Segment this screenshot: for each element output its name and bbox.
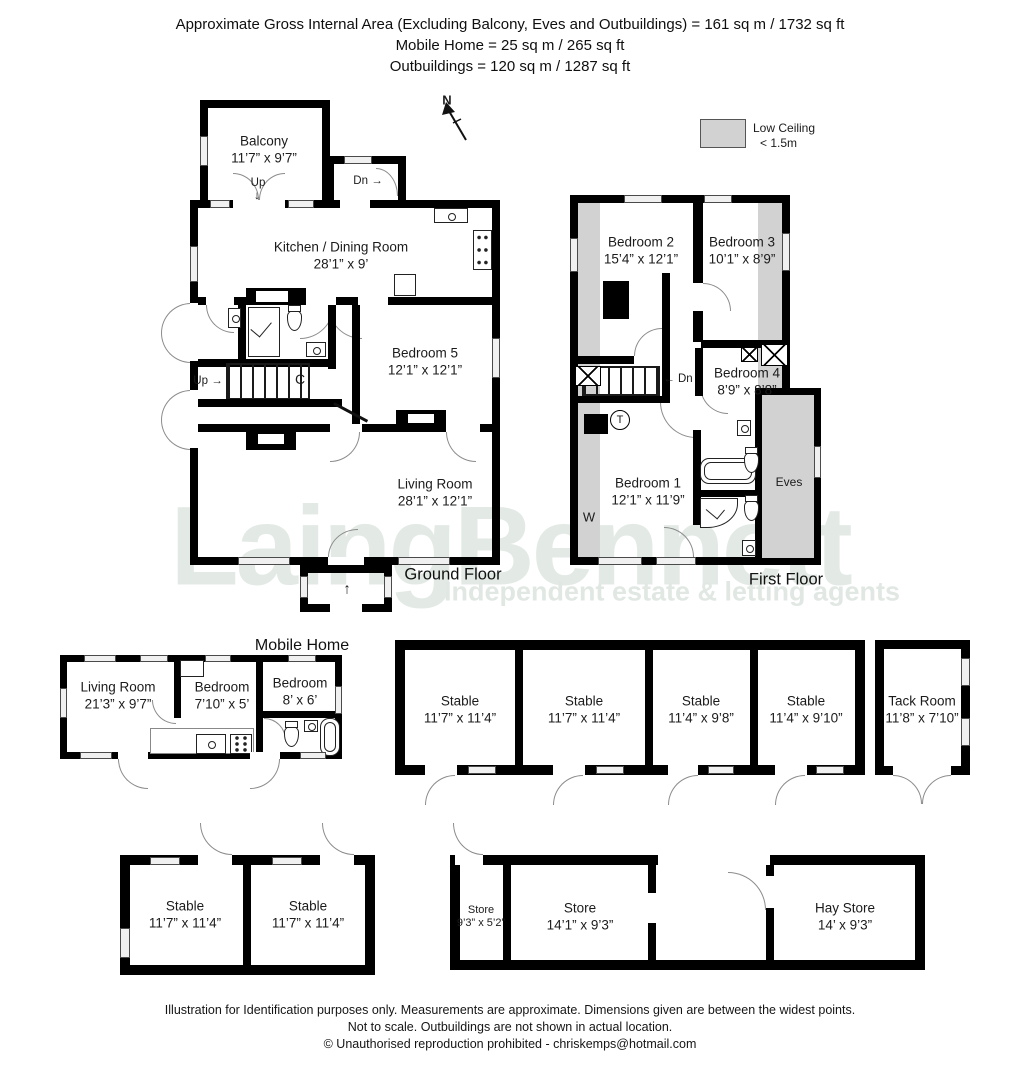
entrance-arrow: ↑ (343, 581, 351, 598)
room-name: Stable (548, 694, 620, 711)
window (272, 857, 302, 865)
room-name: Living Room (80, 680, 155, 697)
kitchen-sink-icon (196, 734, 226, 754)
vanity-sink-icon (256, 291, 288, 302)
room-label-store-small: Store 9’3” x 5’2” (457, 904, 505, 930)
fireplace-icon (258, 434, 284, 444)
room-dims: 28’1” x 9’ (274, 256, 408, 273)
window (205, 655, 231, 662)
basin-icon (737, 420, 751, 436)
room-name: Stable (272, 899, 344, 916)
ground-floor-label: Ground Floor (404, 566, 501, 585)
eves-label: Eves (776, 475, 803, 489)
door-arc (668, 775, 698, 805)
door-opening (320, 855, 354, 865)
first-floor-label: First Floor (749, 571, 823, 590)
floorplan-canvas: LaingBennett Independent estate & lettin… (0, 0, 1020, 1067)
room-name: Stable (769, 694, 842, 711)
header-mobile-home-line: Mobile Home = 25 sq m / 265 sq ft (0, 37, 1020, 54)
window (961, 718, 970, 746)
window (238, 557, 290, 565)
room-label-bedroom2: Bedroom 2 15’4” x 12’1” (604, 235, 678, 268)
room-dims: 11’7” x 11’4” (548, 710, 620, 727)
sink-icon (228, 308, 241, 328)
wall (693, 311, 703, 342)
cupboard-block (584, 414, 608, 434)
stairs-down-label: Dn → (353, 175, 382, 187)
basin-icon (306, 342, 326, 357)
window (961, 658, 970, 686)
wall (578, 396, 668, 403)
wall (243, 865, 251, 965)
window (344, 156, 372, 164)
room-dims: 11’7” x 11’4” (272, 915, 344, 932)
door-opening (775, 765, 807, 775)
room-dims: 11’7” x 9’7” (231, 150, 297, 167)
roof-window-icon (761, 344, 788, 366)
door-arc (161, 420, 191, 450)
window (150, 857, 180, 865)
door-opening (330, 424, 362, 432)
room-name: Bedroom (195, 680, 250, 697)
door-arc (161, 390, 191, 420)
wall (256, 660, 263, 754)
room-dims: 11’4” x 9’8” (668, 710, 734, 727)
legend-subtitle: < 1.5m (760, 136, 797, 150)
window (300, 752, 326, 759)
fireplace-icon (408, 414, 434, 423)
room-dims: 21’3” x 9’7” (80, 696, 155, 713)
roof-window-icon (575, 366, 601, 386)
room-label-mh-bedroom-b: Bedroom 8’ x 6’ (273, 676, 328, 709)
wall (263, 711, 342, 718)
door-opening (446, 424, 480, 432)
window (708, 766, 734, 774)
window (598, 557, 642, 565)
header-area-line: Approximate Gross Internal Area (Excludi… (0, 16, 1020, 33)
window (596, 766, 624, 774)
door-arc (200, 823, 232, 855)
room-label-store: Store 14’1” x 9’3” (547, 901, 614, 934)
door-opening (340, 200, 370, 208)
room-name: Balcony (231, 134, 297, 151)
room-label-stable-4: Stable 11’4” x 9’10” (769, 694, 842, 727)
room-name: Bedroom 1 (611, 476, 684, 493)
room-label-mh-living: Living Room 21’3” x 9’7” (80, 680, 155, 713)
window (468, 766, 496, 774)
window (624, 195, 662, 203)
door-arc (453, 823, 483, 855)
door-opening (206, 297, 234, 305)
wardrobe-label: W (583, 510, 595, 525)
room-label-tack-room: Tack Room 11’8” x 7’10” (885, 694, 958, 727)
room-name: Bedroom 4 (714, 366, 780, 383)
room-label-balcony: Balcony 11’7” x 9’7” (231, 134, 297, 167)
north-arrow-icon (432, 96, 476, 146)
room-name: Store (547, 901, 614, 918)
room-label-living-room: Living Room 28’1” x 12’1” (397, 477, 472, 510)
roof-window-icon (741, 347, 758, 362)
room-dims: 9’3” x 5’2” (457, 917, 505, 930)
room-label-mh-bedroom-a: Bedroom 7’10” x 5’ (195, 680, 250, 713)
room-dims: 7’10” x 5’ (195, 696, 250, 713)
window (60, 688, 67, 718)
down-arrow-glyph: ↓ (254, 190, 260, 202)
open-bay (658, 855, 770, 865)
basin-icon (304, 720, 318, 732)
room-dims: 14’1” x 9’3” (547, 917, 614, 934)
basin-icon (742, 540, 756, 556)
door-arc (161, 303, 191, 333)
window (80, 752, 112, 759)
stairs-down-label: ← Dn (663, 373, 692, 385)
window (140, 655, 168, 662)
low-ceiling-swatch (700, 119, 746, 148)
door-opening (250, 752, 280, 759)
room-label-stable-6: Stable 11’7” x 11’4” (272, 899, 344, 932)
window (210, 200, 230, 208)
window (816, 766, 844, 774)
copyright-line: © Unauthorised reproduction prohibited -… (0, 1037, 1020, 1051)
door-opening (553, 765, 585, 775)
door-arc (250, 759, 280, 789)
door-opening (648, 893, 656, 923)
room-label-hay-store: Hay Store 14’ x 9’3” (815, 901, 875, 934)
window (288, 200, 314, 208)
door-arc (322, 823, 354, 855)
kitchen-sink-icon (434, 208, 468, 223)
room-dims: 11’7” x 11’4” (424, 710, 496, 727)
mobile-home-label: Mobile Home (255, 637, 349, 655)
room-name: Store (457, 904, 505, 917)
room-dims: 12’1” x 11’9” (611, 492, 684, 509)
window (300, 576, 308, 598)
window (782, 233, 790, 271)
room-name: Stable (424, 694, 496, 711)
room-name: Stable (668, 694, 734, 711)
room-dims: 8’ x 6’ (273, 692, 328, 709)
wall (645, 650, 653, 765)
room-name: Hay Store (815, 901, 875, 918)
chimney-breast (603, 281, 629, 319)
header-outbuildings-line: Outbuildings = 120 sq m / 1287 sq ft (0, 58, 1020, 75)
room-dims: 8’9” x 8’8” (714, 382, 780, 399)
room-label-stable-5: Stable 11’7” x 11’4” (149, 899, 221, 932)
wall (750, 650, 758, 765)
room-name: Bedroom 3 (709, 235, 776, 252)
door-opening (425, 765, 457, 775)
room-label-stable-2: Stable 11’7” x 11’4” (548, 694, 620, 727)
window (84, 655, 116, 662)
door-opening (358, 297, 388, 305)
wall (515, 650, 523, 765)
door-opening (455, 855, 483, 865)
legend-title: Low Ceiling (753, 121, 815, 135)
room-name: Living Room (397, 477, 472, 494)
room-name: Tack Room (885, 694, 958, 711)
door-arc (922, 775, 951, 804)
window (384, 576, 392, 598)
room-dims: 11’8” x 7’10” (885, 710, 958, 727)
wall (693, 430, 701, 492)
window (814, 446, 821, 478)
room-name: Bedroom (273, 676, 328, 693)
room-label-kitchen-dining: Kitchen / Dining Room 28’1” x 9’ (274, 240, 408, 273)
room-name: Bedroom 2 (604, 235, 678, 252)
cooker-hob-icon (230, 734, 252, 754)
room-dims: 11’7” x 11’4” (149, 915, 221, 932)
room-name: Bedroom 5 (388, 346, 462, 363)
door-opening (190, 390, 198, 448)
wall (693, 203, 703, 283)
door-opening (198, 855, 232, 865)
room-dims: 10’1” x 8’9” (709, 251, 776, 268)
window (704, 195, 732, 203)
door-arc (161, 333, 191, 363)
tank-icon: T (610, 410, 630, 430)
cooker-hob-icon (473, 230, 492, 270)
room-dims: 11’4” x 9’10” (769, 710, 842, 727)
bath-icon (320, 718, 340, 756)
door-opening (766, 876, 774, 908)
stairs-up-label: Up (251, 177, 266, 189)
wall (695, 348, 703, 396)
room-name: Stable (149, 899, 221, 916)
window (398, 557, 450, 565)
door-opening (190, 303, 198, 361)
room-label-stable-1: Stable 11’7” x 11’4” (424, 694, 496, 727)
door-opening (330, 604, 362, 612)
room-label-bedroom5: Bedroom 5 12’1” x 12’1” (388, 346, 462, 379)
room-label-bedroom1: Bedroom 1 12’1” x 11’9” (611, 476, 684, 509)
window (288, 655, 316, 662)
room-dims: 28’1” x 12’1” (397, 493, 472, 510)
room-name: Kitchen / Dining Room (274, 240, 408, 257)
door-arc (893, 775, 922, 804)
disclaimer-line-2: Not to scale. Outbuildings are not shown… (0, 1020, 1020, 1034)
watermark-tagline: Independent estate & letting agents (444, 577, 900, 608)
window (570, 238, 578, 272)
wardrobe-box (180, 660, 204, 677)
room-label-bedroom4: Bedroom 4 8’9” x 8’8” (714, 366, 780, 399)
window (120, 928, 130, 958)
window (200, 136, 208, 166)
room-dims: 14’ x 9’3” (815, 917, 875, 934)
room-label-bedroom3: Bedroom 3 10’1” x 8’9” (709, 235, 776, 268)
door-opening (118, 752, 148, 759)
window (492, 338, 500, 378)
door-arc (553, 775, 583, 805)
wall (198, 399, 342, 407)
door-opening (328, 557, 364, 565)
door-arc (118, 759, 148, 789)
door-opening (893, 766, 951, 775)
door-opening (634, 356, 662, 364)
tank-label: T (617, 414, 624, 426)
room-label-stable-3: Stable 11’4” x 9’8” (668, 694, 734, 727)
cupboard-label: C (295, 371, 305, 387)
window (656, 557, 696, 565)
room-dims: 15’4” x 12’1” (604, 251, 678, 268)
door-arc (775, 775, 805, 805)
shower-icon (248, 307, 280, 357)
room-dims: 12’1” x 12’1” (388, 362, 462, 379)
stairs-up-label: Up → (193, 375, 222, 387)
disclaimer-line-1: Illustration for Identification purposes… (0, 1003, 1020, 1017)
fridge-icon (394, 274, 416, 296)
door-opening (668, 765, 698, 775)
door-arc (425, 775, 455, 805)
window (190, 246, 198, 282)
window (335, 686, 342, 714)
